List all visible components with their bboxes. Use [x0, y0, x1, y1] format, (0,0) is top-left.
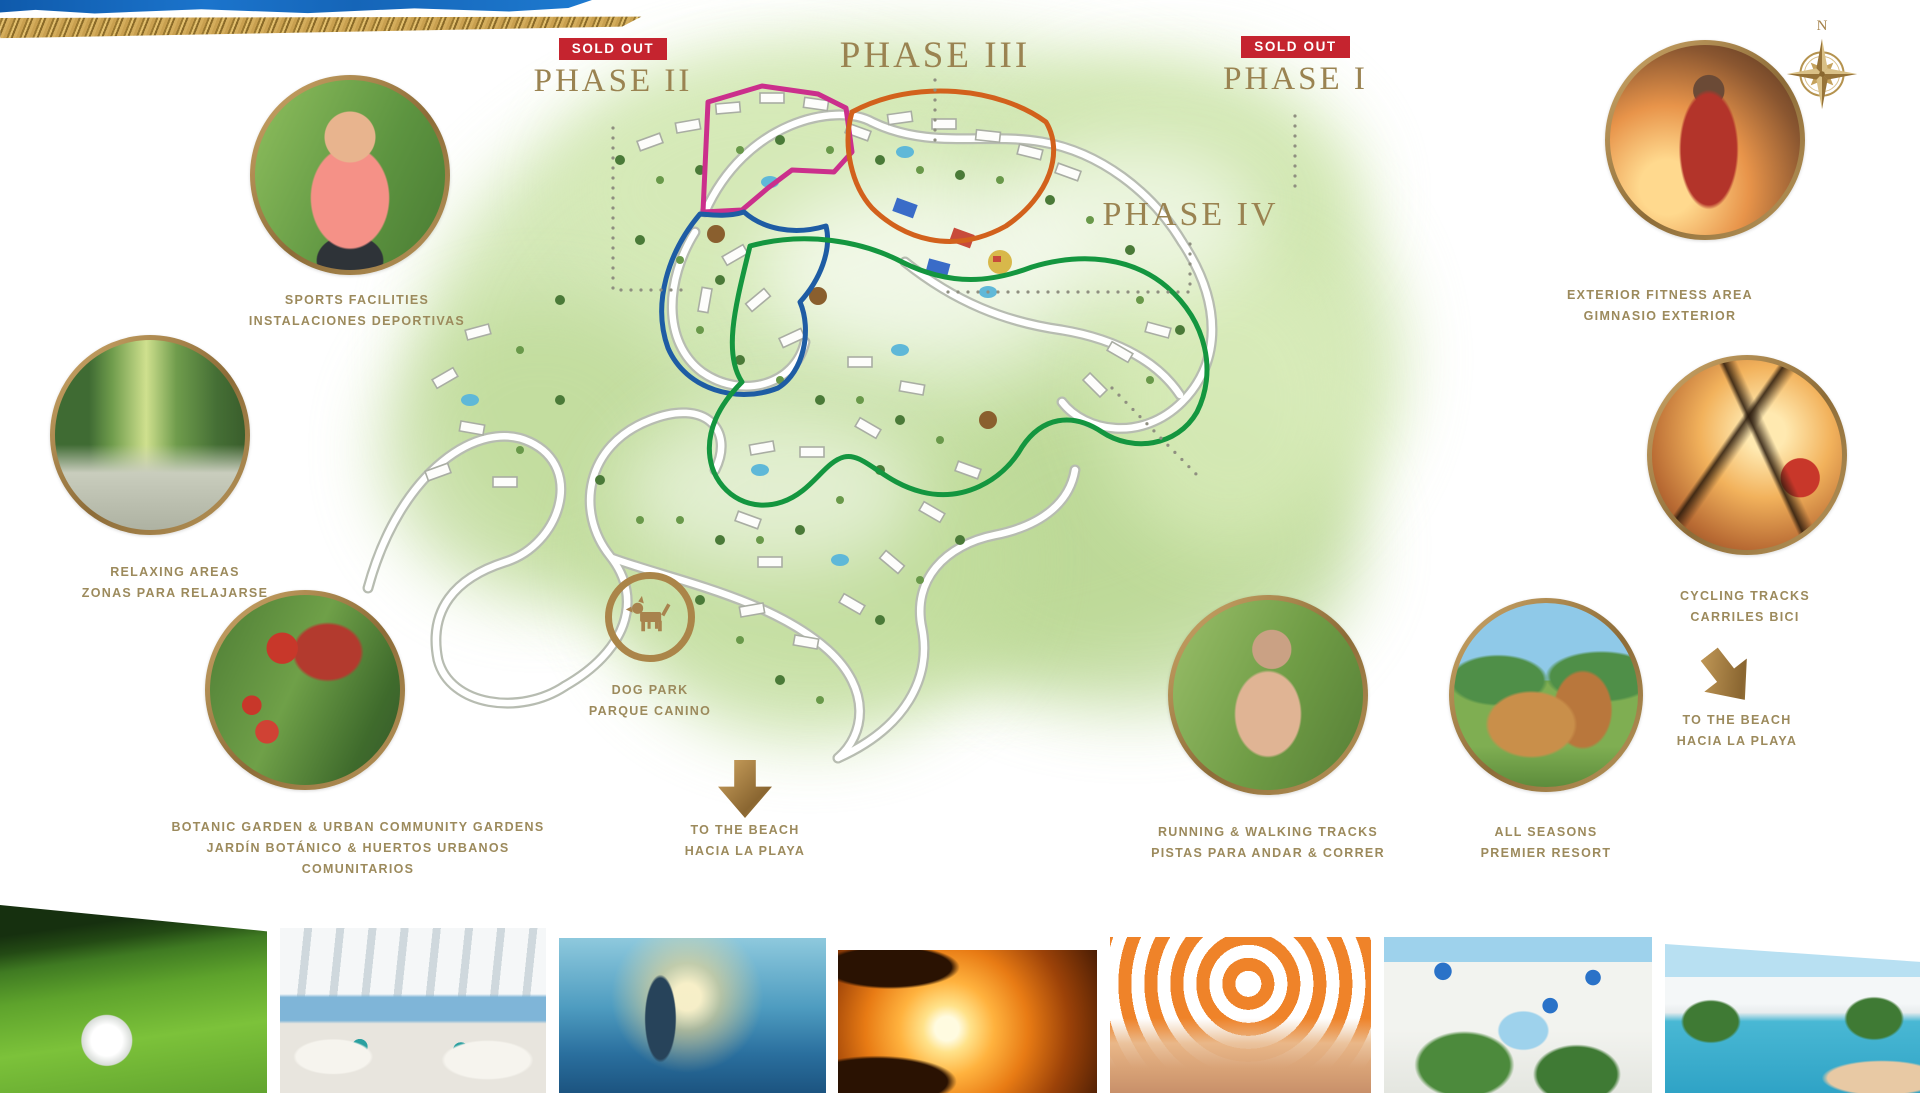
- map-plazas: [707, 225, 997, 429]
- phase-4-leader: [940, 244, 1190, 292]
- cycling-tracks-photo: [1647, 355, 1847, 555]
- photo-golf-course: [0, 905, 267, 1093]
- fitness-area-label: EXTERIOR FITNESS AREA GIMNASIO EXTERIOR: [1460, 285, 1860, 327]
- phase-1-title: PHASE I: [1178, 61, 1413, 98]
- beach-right-label: TO THE BEACH HACIA LA PLAYA: [1637, 710, 1837, 752]
- phase-4-title: PHASE IV: [1078, 196, 1303, 234]
- photo-white-village-street: [1384, 937, 1652, 1093]
- botanic-garden-label: BOTANIC GARDEN & URBAN COMMUNITY GARDENS…: [108, 817, 608, 880]
- photo-resort-pool: [1665, 944, 1920, 1093]
- relaxing-areas-photo: [50, 335, 250, 535]
- photo-sunset-palms: [838, 950, 1097, 1093]
- sold-out-badge: SOLD OUT: [1241, 36, 1350, 58]
- dog-park-icon: [605, 572, 695, 662]
- photo-terrace-sea-view: [280, 928, 546, 1093]
- dog-park-label: DOG PARK PARQUE CANINO: [550, 680, 750, 722]
- photo-woman-sun-hat: [1110, 937, 1371, 1093]
- sports-facilities-photo: [250, 75, 450, 275]
- running-tracks-label: RUNNING & WALKING TRACKS PISTAS PARA AND…: [1068, 822, 1468, 864]
- compass-north-label: N: [1817, 18, 1828, 35]
- map-playground: [988, 250, 1012, 274]
- all-seasons-resort-photo: [1449, 598, 1643, 792]
- sports-facilities-label: SPORTS FACILITIES INSTALACIONES DEPORTIV…: [157, 290, 557, 332]
- sold-out-badge: SOLD OUT: [559, 38, 668, 60]
- running-tracks-photo: [1168, 595, 1368, 795]
- phase-1-block: SOLD OUT PHASE I: [1178, 36, 1413, 98]
- masterplan-page: SOLD OUT PHASE II PHASE III SOLD OUT PHA…: [0, 0, 1920, 1093]
- botanic-garden-photo: [205, 590, 405, 790]
- phase-2-title: PHASE II: [488, 63, 738, 100]
- phase-1-outline: [848, 91, 1054, 241]
- fitness-area-photo: [1605, 40, 1805, 240]
- phase-3-block: PHASE III: [810, 34, 1060, 77]
- beach-center-label: TO THE BEACH HACIA LA PLAYA: [645, 820, 845, 862]
- map-buildings: [425, 93, 1171, 649]
- phase-3-title: PHASE III: [810, 34, 1060, 77]
- photo-swimmer-sunset: [559, 938, 826, 1093]
- phase-2-block: SOLD OUT PHASE II: [488, 38, 738, 100]
- phase-4-block: PHASE IV: [1078, 196, 1303, 234]
